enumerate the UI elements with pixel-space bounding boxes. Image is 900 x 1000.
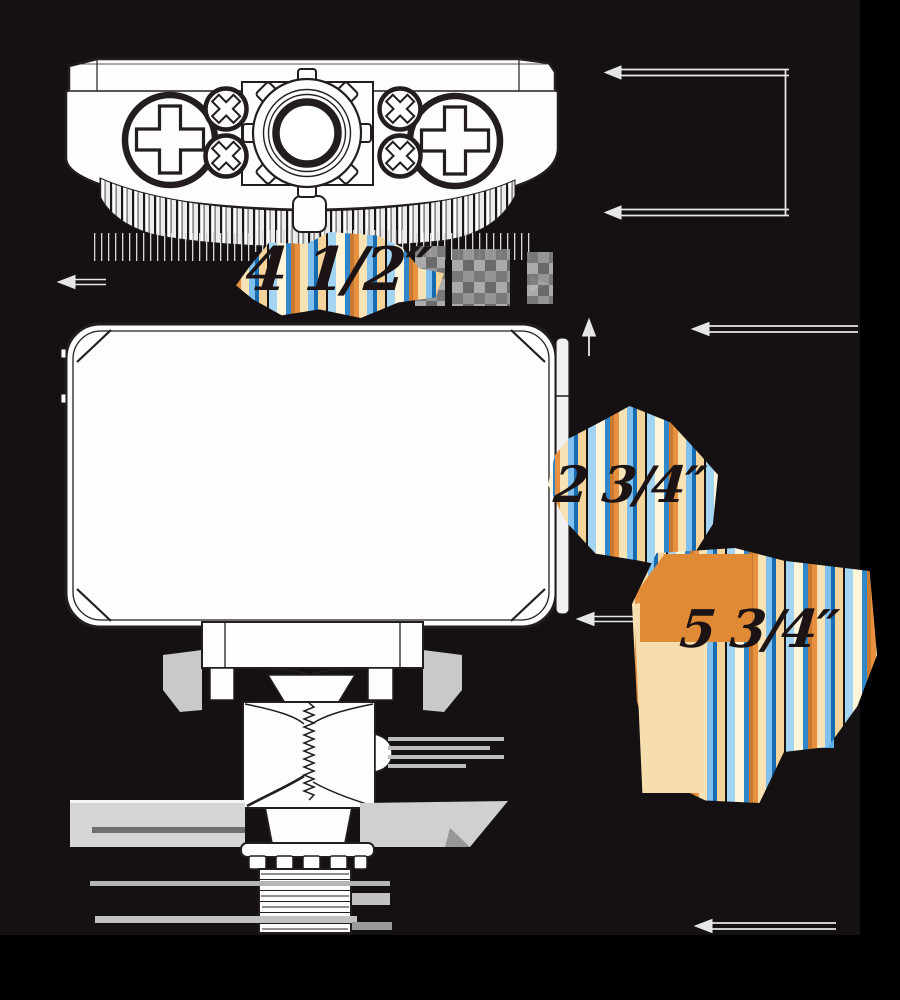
top-view — [66, 59, 558, 261]
front-view — [61, 324, 569, 627]
body-height-dimension-label: 2 3/4″ — [548, 406, 718, 570]
glitch-bar — [95, 916, 357, 923]
cross-screw-bottom-left — [205, 135, 248, 178]
overall-height-extension-bottom — [695, 920, 836, 933]
knuckle-block — [243, 702, 375, 808]
arrow-up-icon — [583, 319, 596, 336]
depth-dimension-bracket — [605, 66, 789, 219]
phillips-screw-right — [410, 96, 500, 186]
glitch-checker-block — [452, 249, 510, 306]
arrow-left-icon — [695, 920, 712, 933]
glitch-slab-left — [70, 803, 245, 847]
body-height-dimension-value: 2 3/4″ — [552, 460, 707, 510]
black-frame-bottom — [0, 935, 900, 1000]
glitch-gray-slab-right — [423, 650, 462, 712]
overall-height-dimension-value: 5 3/4″ — [678, 604, 839, 656]
glitch-bar — [70, 800, 245, 803]
cross-screw-bottom-right — [379, 135, 422, 178]
black-frame-right — [860, 0, 900, 1000]
glitch-checker-block — [527, 252, 553, 304]
phillips-screw-left — [125, 95, 215, 185]
glitch-bar — [352, 922, 392, 930]
knuckle-funnel — [268, 675, 355, 703]
dimension-diagram-canvas: 4 1/2″ 2 3/4″ 5 3/4″ — [0, 0, 900, 1000]
arrow-left-icon — [58, 276, 75, 289]
bracket-leg-left — [210, 668, 234, 700]
gear-knuckle — [243, 69, 371, 197]
arrow-left-icon — [577, 613, 594, 626]
arrow-left-icon — [605, 206, 621, 219]
width-dimension-label: 4 1/2″ — [236, 232, 444, 318]
threaded-pipe — [259, 869, 351, 933]
overall-height-extension-top — [692, 323, 858, 336]
arrow-left-icon — [692, 323, 709, 336]
lock-nut — [241, 843, 374, 857]
arrow-left-icon — [605, 66, 621, 79]
glitch-bar — [90, 881, 390, 886]
glitch-bar — [352, 893, 390, 905]
mount-assembly — [70, 622, 508, 933]
cross-screw-top-right — [379, 88, 422, 131]
glitch-slab-right — [360, 801, 508, 847]
fin-extension-lines — [90, 233, 250, 261]
front-face — [66, 324, 556, 627]
stem-neck — [265, 808, 352, 844]
glitch-gray-slab-left — [163, 650, 202, 712]
bracket-bar — [202, 622, 423, 668]
cross-screw-top-left — [205, 88, 248, 131]
overall-height-dimension-label: 5 3/4″ — [632, 548, 877, 803]
bracket-leg-right — [368, 668, 393, 700]
width-dimension-value: 4 1/2″ — [243, 240, 431, 300]
line-art — [0, 0, 900, 1000]
knuckle-tongue — [293, 196, 326, 232]
